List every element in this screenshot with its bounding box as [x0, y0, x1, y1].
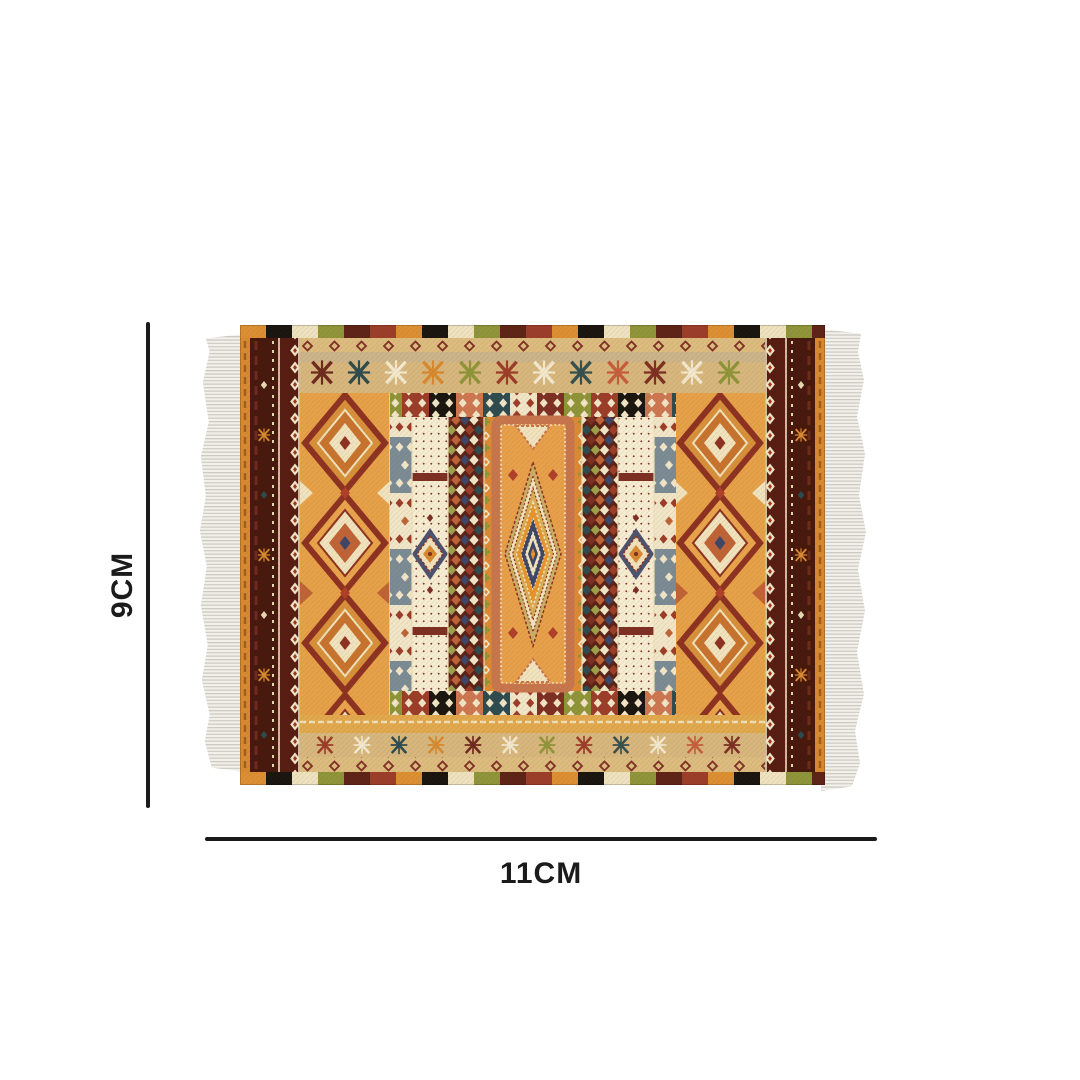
left-fringe: [195, 334, 244, 772]
height-dimension-label: 9CM: [103, 525, 143, 645]
height-dimension-line: [146, 322, 150, 808]
width-dimension-label: 11CM: [205, 854, 877, 894]
rug-image: [240, 325, 825, 785]
width-dimension-line: [205, 837, 877, 841]
product-dimension-diagram: 9CM 11CM: [0, 0, 1080, 1080]
right-fringe: [821, 329, 871, 791]
